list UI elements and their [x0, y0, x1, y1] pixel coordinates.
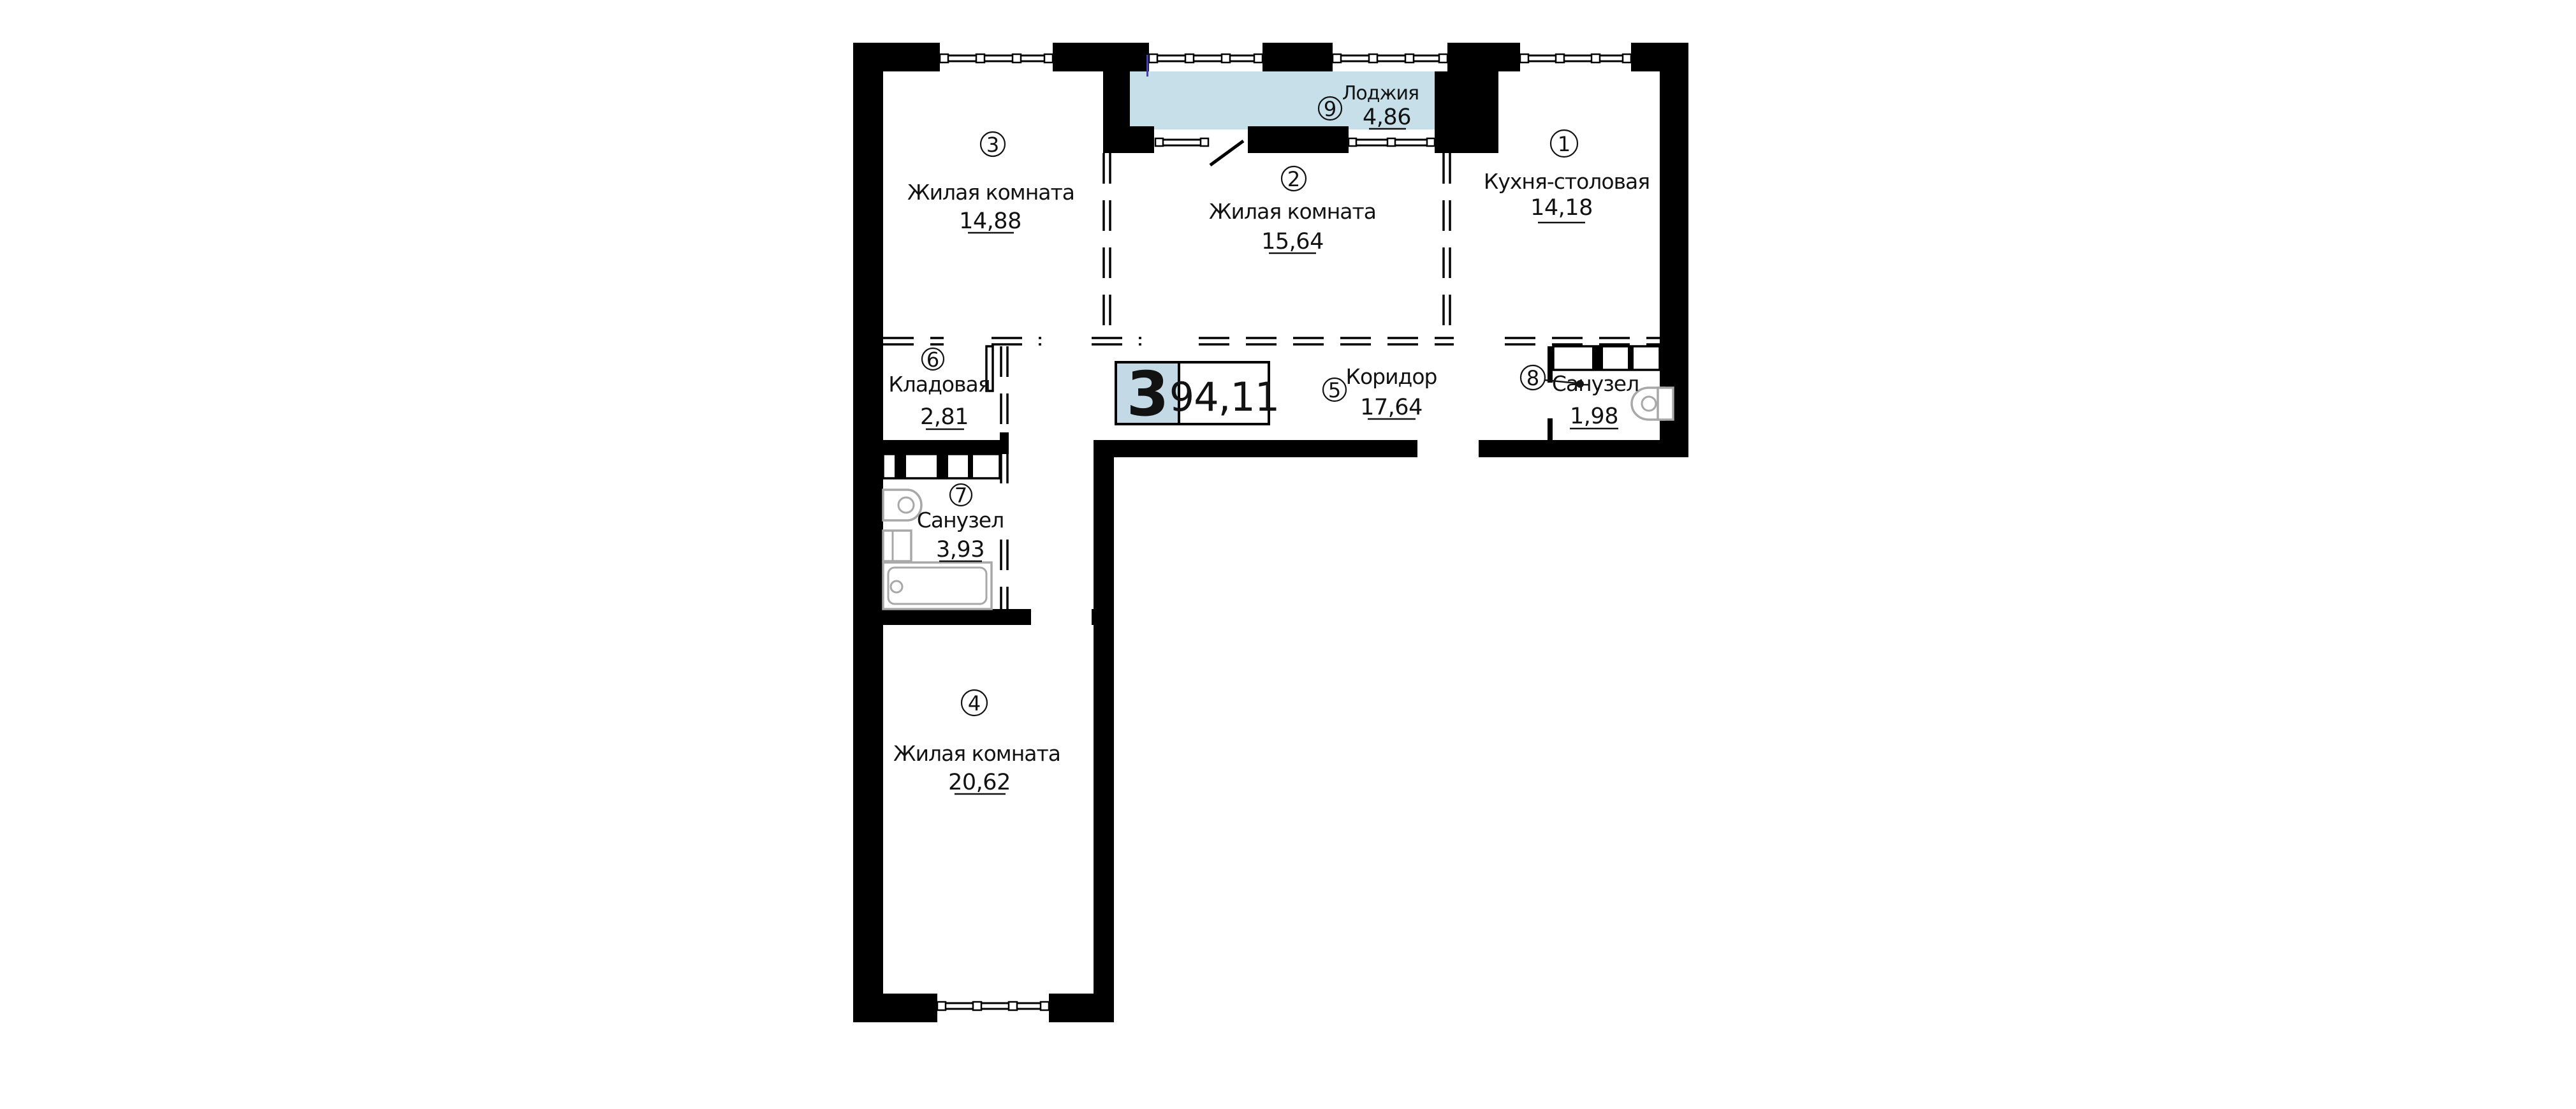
room-name: Санузел: [1552, 371, 1639, 396]
wall-corridor-south: [1095, 440, 1417, 457]
window-room4: [937, 994, 1049, 1022]
wall-san8-left: [1548, 418, 1553, 440]
wall-segment: [1053, 43, 1149, 71]
loggia-pier-left-foot: [1130, 126, 1154, 153]
floorplan-canvas: 3 94,11 1 Кухня-столовая 14,18 2 Жилая к…: [0, 0, 2576, 1109]
room-name: Кладовая: [888, 372, 990, 397]
window-loggia-kitchen: [1349, 138, 1435, 146]
room-label-living2: 2 Жилая комната 15,64: [1209, 166, 1376, 254]
loggia-pier-right: [1435, 71, 1498, 153]
room-name: Коридор: [1346, 364, 1437, 389]
wall-segment: [1447, 43, 1520, 71]
room-number: 2: [1287, 167, 1300, 191]
wall-stub: [1092, 609, 1114, 625]
room-area: 14,88: [959, 209, 1021, 234]
room-area: 14,18: [1530, 195, 1593, 221]
room-number: 6: [926, 348, 939, 372]
room-label-bathroom7: 7 Санузел 3,93: [917, 483, 1004, 562]
floorplan: 3 94,11 1 Кухня-столовая 14,18 2 Жилая к…: [0, 0, 2576, 1109]
room-number: 9: [1324, 97, 1336, 121]
window-loggia-room2: [1155, 138, 1208, 146]
san7-cabinet-row: [883, 454, 1000, 478]
room-number: 7: [955, 483, 967, 508]
room-number: 8: [1526, 366, 1539, 390]
window-loggia-left: [1149, 43, 1262, 71]
wall-corridor-south: [1479, 440, 1688, 457]
san8-cabinet-row: [1553, 346, 1660, 370]
partition-storage-right: [1001, 346, 1007, 609]
loggia-door-leaf: [1210, 141, 1243, 165]
room-area: 2,81: [920, 404, 969, 430]
wall-segment: [1262, 43, 1333, 71]
wall-leg-right: [1094, 440, 1114, 1022]
bathtub-icon: [883, 562, 992, 609]
room-label-living4: 4 Жилая комната 20,62: [893, 690, 1060, 795]
room-area: 20,62: [948, 770, 1011, 795]
wall-left-outer: [853, 43, 883, 1022]
room-number: 4: [968, 691, 981, 716]
doors: [986, 141, 1243, 391]
unit-badge: 3 94,11: [1116, 358, 1279, 430]
room-label-kitchen: 1 Кухня-столовая 14,18: [1484, 130, 1650, 223]
drawing-artifact: [1146, 55, 1148, 77]
wall-stub: [1000, 432, 1009, 454]
room-name: Жилая комната: [1209, 199, 1376, 224]
badge-room-count: 3: [1127, 358, 1169, 430]
room-area: 4,86: [1363, 105, 1411, 130]
partition-corridor: [883, 338, 1660, 344]
room-label-bathroom8: 8 Санузел 1,98: [1521, 365, 1639, 429]
loggia-pier-mid: [1248, 126, 1349, 153]
badge-total-area: 94,11: [1169, 374, 1280, 420]
room-label-corridor: 5 Коридор 17,64: [1323, 364, 1437, 420]
room-name: Жилая комната: [893, 741, 1060, 766]
room-label-storage: 6 Кладовая 2,81: [888, 348, 990, 430]
room-area: 3,93: [936, 537, 984, 562]
room-name: Санузел: [917, 508, 1004, 532]
wall-bottom: [853, 994, 937, 1022]
window-kitchen: [1520, 43, 1631, 71]
wall-san7-top: [883, 440, 1000, 454]
room-area: 17,64: [1360, 395, 1423, 420]
room-number: 5: [1328, 378, 1341, 402]
sink-icon: [883, 490, 921, 520]
room-area: 1,98: [1570, 404, 1618, 429]
room-name: Жилая комната: [907, 180, 1074, 205]
washer-icon: [883, 531, 911, 561]
room-number: 3: [986, 133, 999, 157]
room-label-living3: 3 Жилая комната 14,88: [907, 132, 1074, 234]
wall-room4-top: [883, 609, 1031, 625]
wall-bottom: [1049, 994, 1114, 1022]
room-area: 15,64: [1261, 229, 1324, 254]
room-number: 1: [1558, 132, 1570, 156]
room-name: Кухня-столовая: [1484, 169, 1650, 194]
room-name: Лоджия: [1342, 82, 1419, 105]
loggia-pier-left: [1103, 71, 1130, 153]
window-loggia-right: [1333, 43, 1447, 71]
window-room3: [940, 43, 1053, 71]
